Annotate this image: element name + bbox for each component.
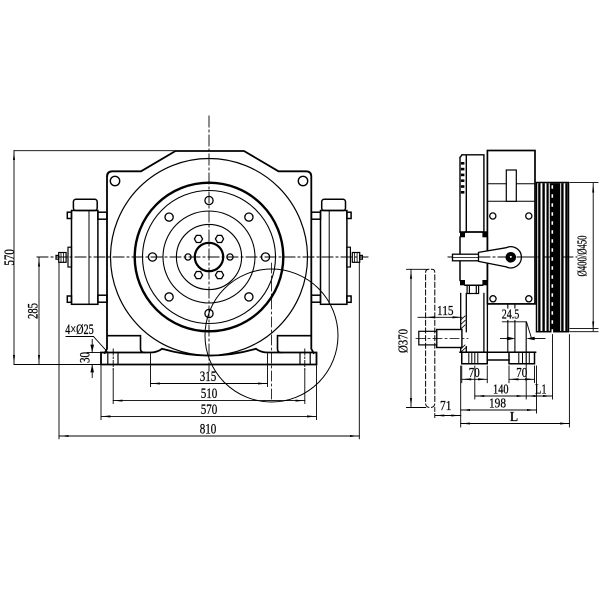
svg-text:Ø370: Ø370	[397, 329, 412, 353]
svg-text:285: 285	[25, 303, 41, 319]
svg-text:71: 71	[440, 399, 452, 414]
svg-text:198: 198	[489, 397, 506, 412]
svg-text:Ø400/Ø450: Ø400/Ø450	[576, 236, 591, 277]
svg-text:30: 30	[78, 352, 94, 363]
svg-text:315: 315	[200, 369, 217, 385]
svg-text:510: 510	[201, 386, 218, 402]
svg-text:L: L	[510, 410, 519, 425]
svg-text:570: 570	[201, 402, 218, 418]
svg-text:70: 70	[516, 366, 527, 381]
svg-text:70: 70	[469, 366, 480, 381]
svg-text:140: 140	[493, 383, 509, 398]
svg-text:810: 810	[200, 421, 217, 437]
svg-text:4×Ø25: 4×Ø25	[65, 322, 94, 338]
svg-text:24.5: 24.5	[502, 308, 520, 323]
svg-text:570: 570	[2, 249, 18, 266]
svg-text:115: 115	[437, 304, 454, 319]
